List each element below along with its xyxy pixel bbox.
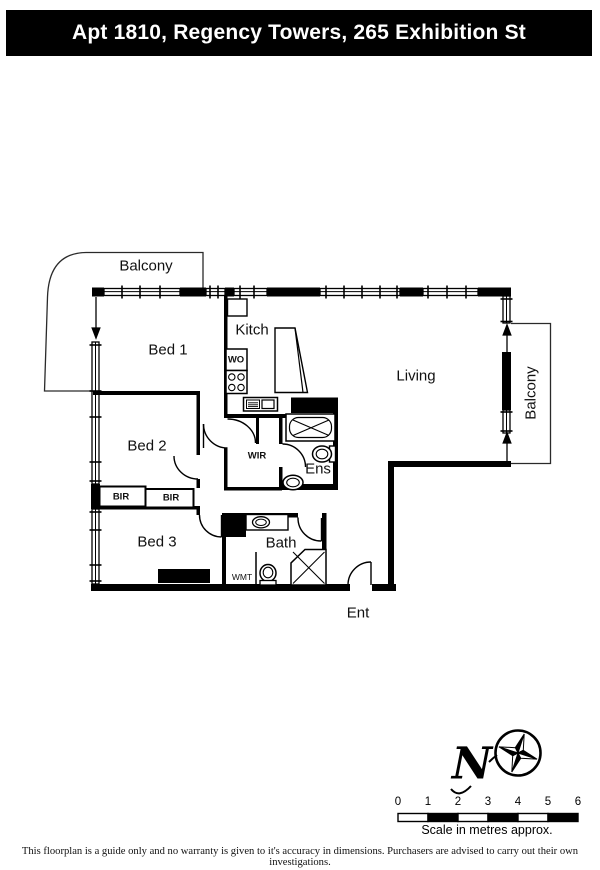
- room-label-ens: Ens: [305, 461, 331, 478]
- scale-tick: 6: [575, 796, 581, 808]
- bathtub-icon: [286, 414, 335, 441]
- label-wmt: WMT: [232, 572, 252, 582]
- compass-north-letter: N: [452, 739, 492, 790]
- shower-icon: [291, 550, 326, 586]
- label-wall-oven: WO: [228, 355, 244, 366]
- room-label-bed1: Bed 1: [148, 342, 187, 359]
- bath-toilet-icon: [260, 565, 276, 586]
- room-label-bath: Bath: [266, 535, 297, 552]
- room-label-entry: Ent: [347, 605, 370, 622]
- window-wall-top: [92, 286, 511, 299]
- room-label-balcony-right: Balcony: [523, 366, 540, 419]
- room-label-bed2: Bed 2: [127, 438, 166, 455]
- stove-cooktop-icon: [226, 371, 247, 394]
- scale-tick: 4: [515, 796, 521, 808]
- scale-tick: 3: [485, 796, 491, 808]
- scale-tick: 5: [545, 796, 551, 808]
- ensuite-basin-icon: [283, 475, 303, 490]
- kitchen-sink-icon: [244, 398, 278, 412]
- scale-tick: 0: [395, 796, 401, 808]
- room-label-balcony-top: Balcony: [119, 258, 172, 275]
- fridge-space: [228, 299, 248, 316]
- window-wall-left: [90, 342, 102, 584]
- room-label-kitchen: Kitch: [235, 322, 268, 339]
- scale-tick: 2: [455, 796, 461, 808]
- scale-tick-labels: 0 1 2 3 4 5 6: [390, 796, 590, 810]
- floorplan-page: Apt 1810, Regency Towers, 265 Exhibition…: [0, 0, 600, 870]
- scale-tick: 1: [425, 796, 431, 808]
- label-bir-left: BIR: [113, 492, 129, 503]
- bath-vanity-icon: [246, 515, 288, 531]
- room-label-bed3: Bed 3: [137, 534, 176, 551]
- scale-caption: Scale in metres approx.: [421, 823, 552, 837]
- floorplan-drawing: [0, 0, 600, 870]
- door-swings: [174, 419, 371, 585]
- kitchen-bench: [275, 328, 308, 393]
- room-label-living: Living: [396, 368, 435, 385]
- scale-bar: 0 1 2 3 4 5 6 Scale in metres approx.: [390, 796, 590, 842]
- ensuite-fixtures: [283, 414, 336, 490]
- label-bir-right: BIR: [163, 493, 179, 504]
- window-wall-right: [501, 296, 513, 433]
- disclaimer-text: This floorplan is a guide only and no wa…: [0, 846, 600, 868]
- room-label-wir: WIR: [248, 451, 266, 462]
